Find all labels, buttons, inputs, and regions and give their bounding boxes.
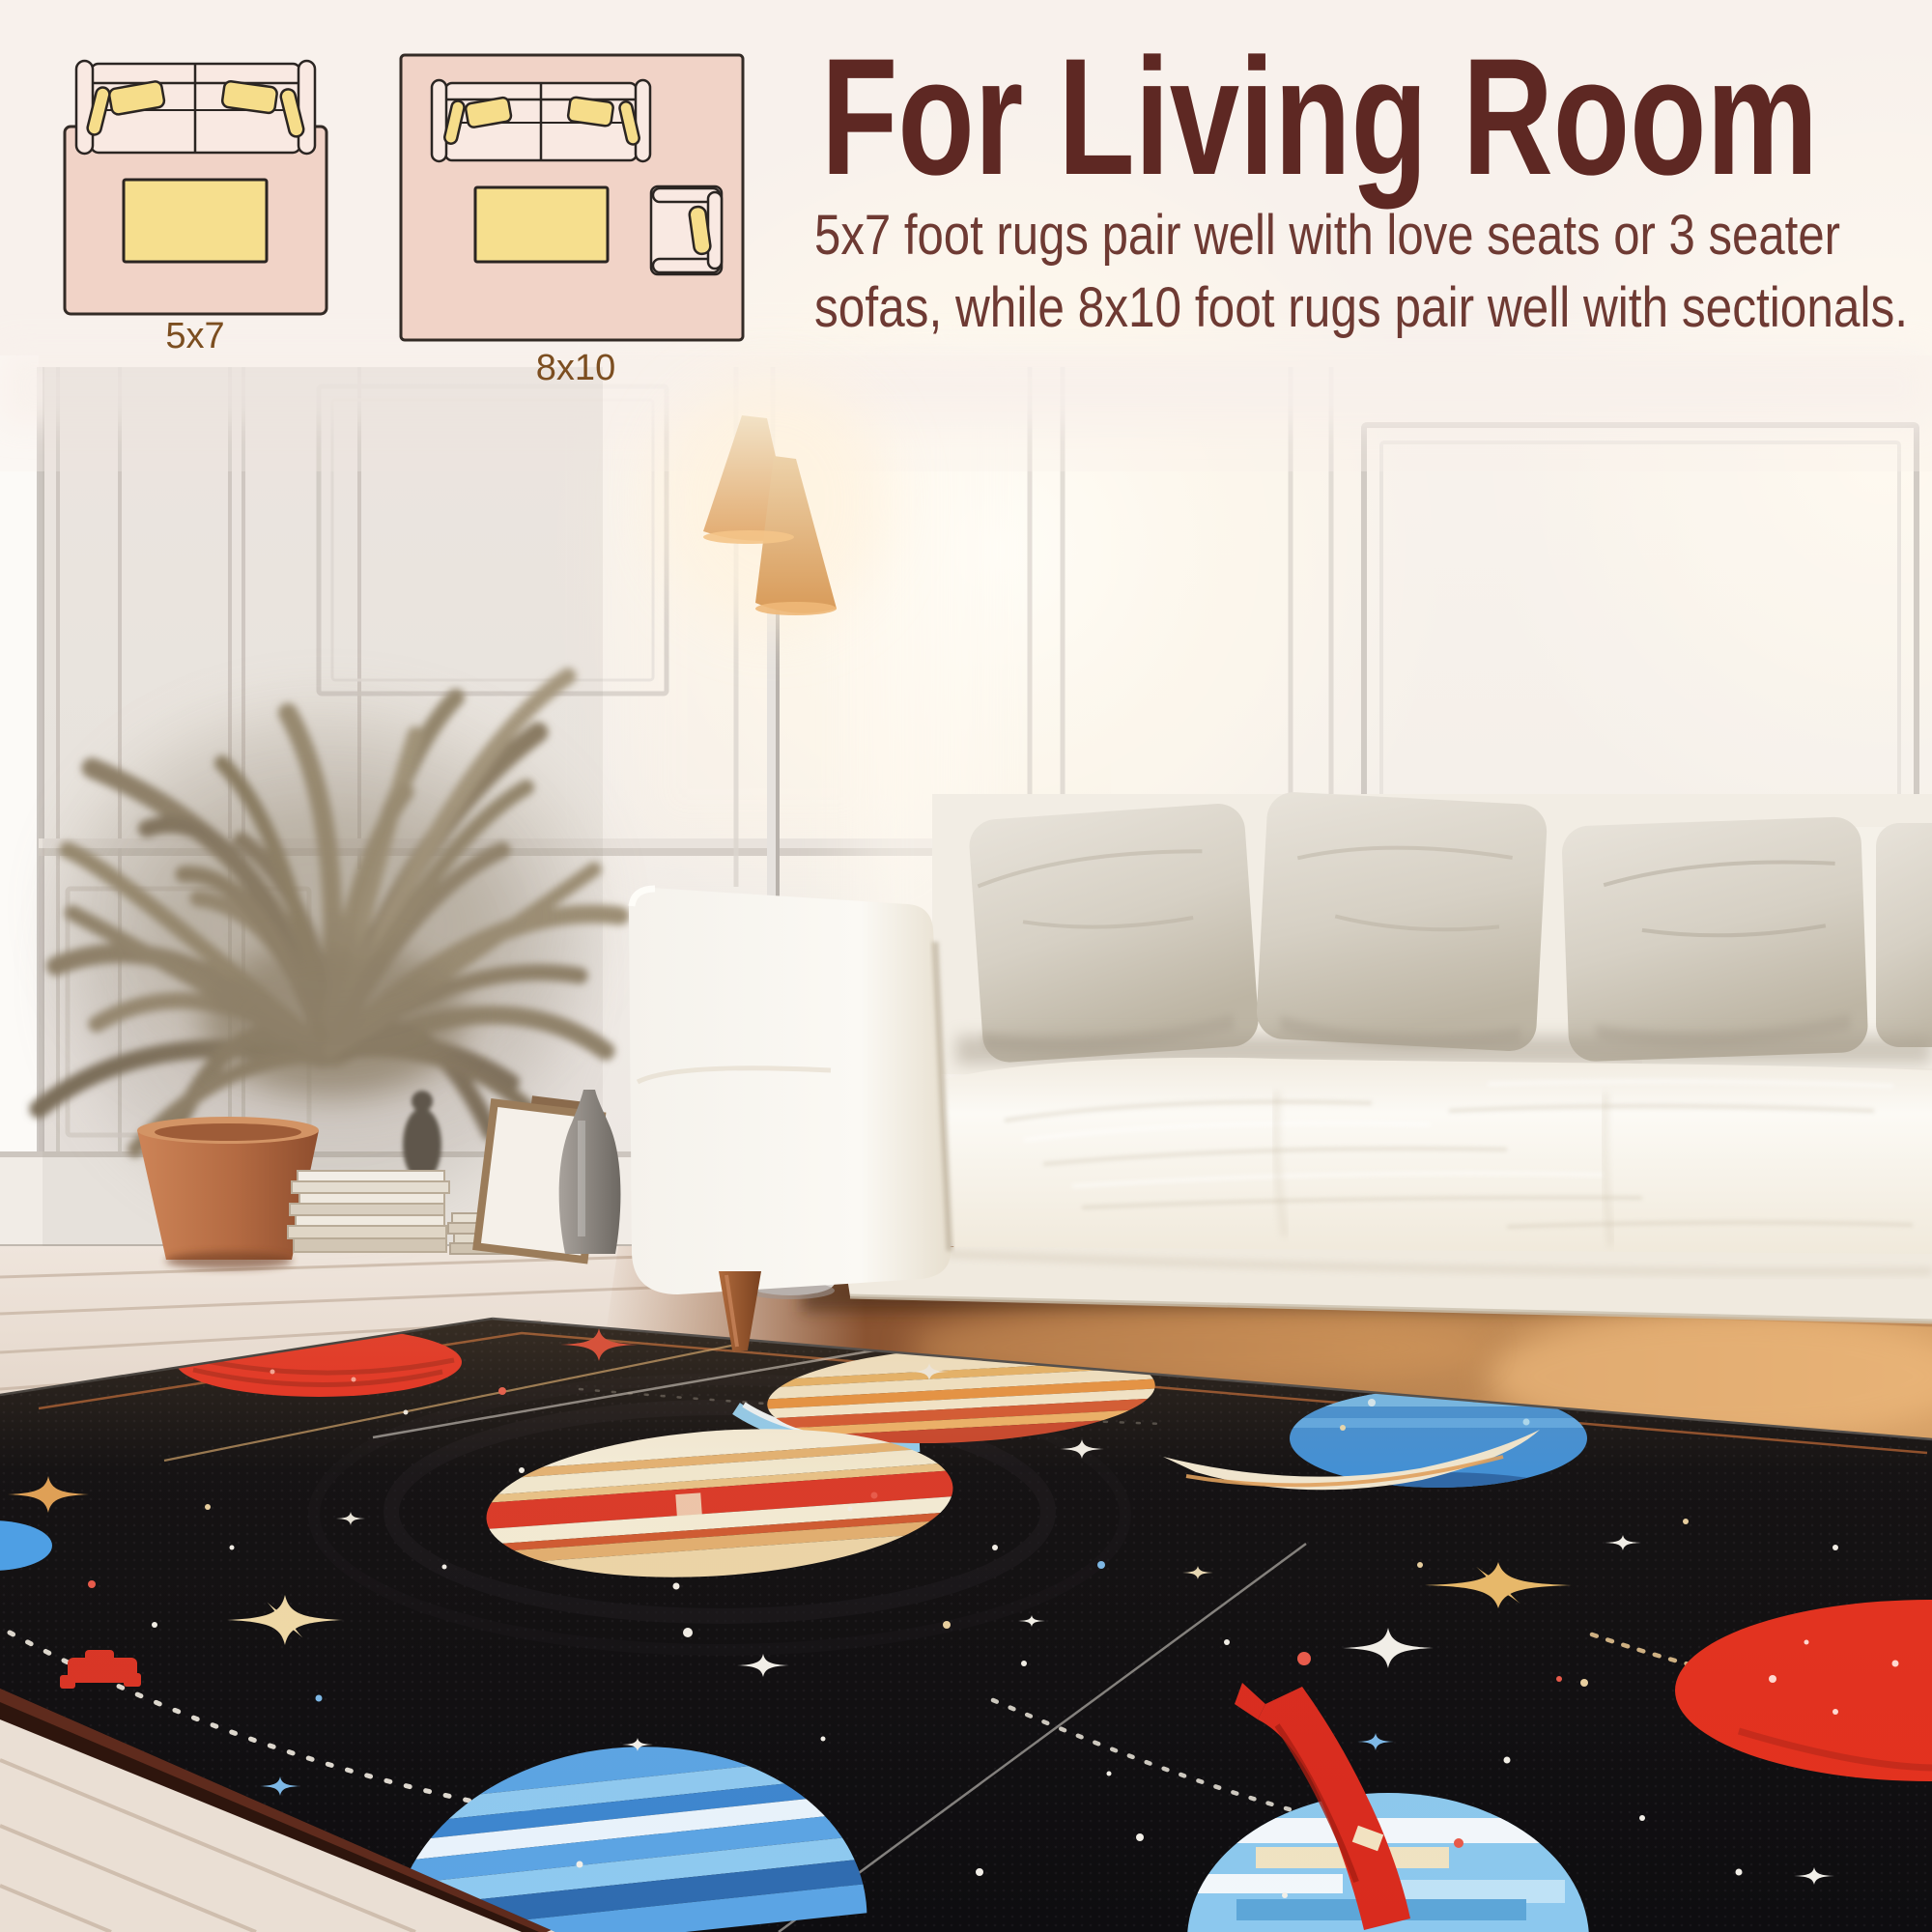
svg-text:5x7: 5x7 (165, 316, 224, 356)
svg-text:5x7 foot rugs pair well with l: 5x7 foot rugs pair well with love seats … (814, 204, 1840, 267)
svg-text:8x10: 8x10 (536, 348, 615, 388)
svg-text:sofas, while 8x10 foot rugs pa: sofas, while 8x10 foot rugs pair well wi… (814, 276, 1908, 339)
svg-text:For Living Room: For Living Room (821, 24, 1818, 210)
